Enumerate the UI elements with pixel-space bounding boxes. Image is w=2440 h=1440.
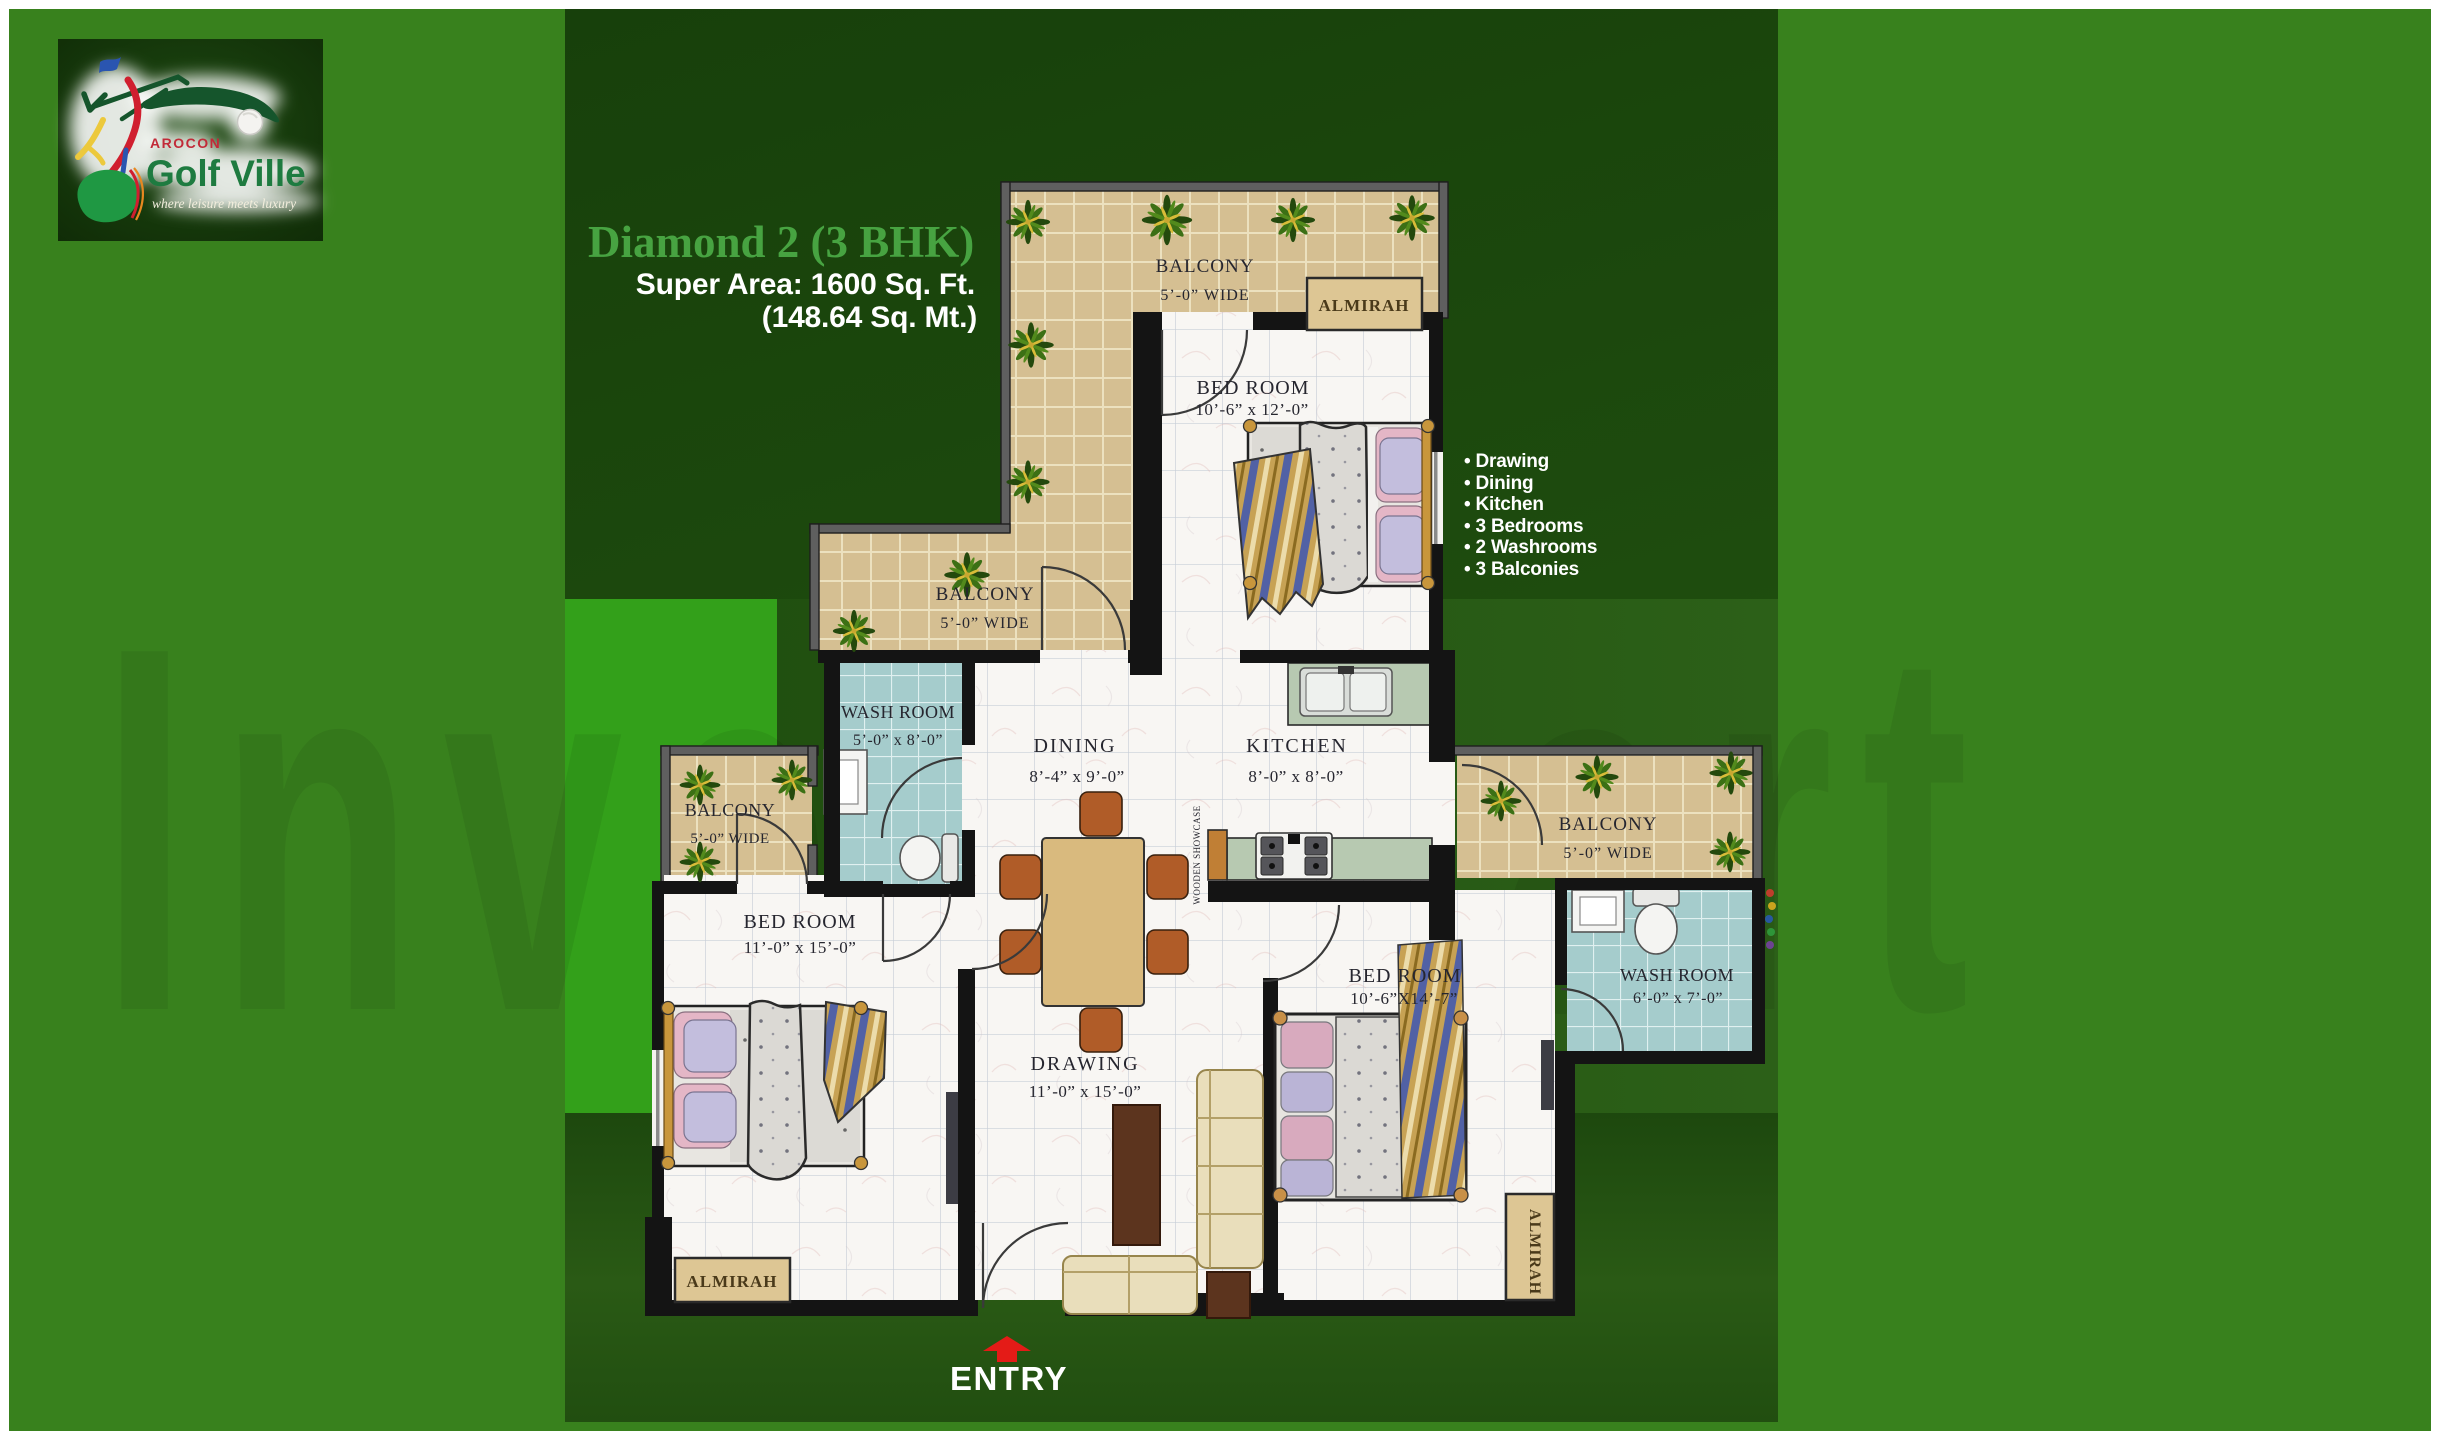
svg-text:BED ROOM: BED ROOM [1196,377,1309,399]
svg-text:AROCON: AROCON [150,135,221,151]
svg-text:5’-0” WIDE: 5’-0” WIDE [1160,287,1249,304]
svg-text:ENTRY: ENTRY [950,1360,1068,1397]
svg-text:BED ROOM: BED ROOM [743,911,856,933]
svg-text:Diamond 2 (3 BHK): Diamond 2 (3 BHK) [588,217,974,267]
svg-text:WOODEN SHOWCASE: WOODEN SHOWCASE [1192,805,1202,904]
svg-text:• Kitchen: • Kitchen [1464,494,1544,515]
svg-text:8’-0” x 8’-0”: 8’-0” x 8’-0” [1248,767,1343,786]
svg-text:• Dining: • Dining [1464,473,1533,494]
svg-text:BALCONY: BALCONY [1156,256,1255,277]
svg-text:5’-0” WIDE: 5’-0” WIDE [940,615,1029,632]
svg-text:ALMIRAH: ALMIRAH [686,1272,777,1291]
svg-text:WASH ROOM: WASH ROOM [1620,965,1734,985]
svg-text:(148.64 Sq. Mt.): (148.64 Sq. Mt.) [762,301,977,334]
svg-text:KITCHEN: KITCHEN [1246,735,1348,757]
svg-text:BED ROOM: BED ROOM [1348,965,1461,987]
svg-text:6’-0” x 7’-0”: 6’-0” x 7’-0” [1633,990,1723,1007]
svg-text:• Drawing: • Drawing [1464,451,1549,472]
svg-text:11’-0” x 15’-0”: 11’-0” x 15’-0” [1029,1082,1142,1101]
svg-text:WASH ROOM: WASH ROOM [841,702,955,722]
svg-text:ALMIRAH: ALMIRAH [1526,1209,1543,1295]
svg-text:BALCONY: BALCONY [936,584,1035,605]
svg-text:ALMIRAH: ALMIRAH [1318,296,1409,315]
svg-text:BALCONY: BALCONY [1559,814,1658,835]
svg-text:• 2 Washrooms: • 2 Washrooms [1464,537,1597,558]
svg-text:5’-0” WIDE: 5’-0” WIDE [1563,845,1652,862]
svg-text:Golf Ville: Golf Ville [146,153,306,194]
svg-text:11’-0” x 15’-0”: 11’-0” x 15’-0” [744,938,857,957]
svg-text:• 3 Bedrooms: • 3 Bedrooms [1464,516,1583,537]
svg-text:• 3 Balconies: • 3 Balconies [1464,559,1579,580]
svg-text:10’-6” x 12’-0”: 10’-6” x 12’-0” [1195,400,1308,419]
svg-text:BALCONY: BALCONY [685,800,776,820]
svg-text:5’-0” WIDE: 5’-0” WIDE [690,831,769,847]
svg-text:10’-6”X14’-7”: 10’-6”X14’-7” [1350,989,1458,1008]
svg-text:8’-4” x 9’-0”: 8’-4” x 9’-0” [1029,767,1124,786]
svg-text:Super Area: 1600 Sq. Ft.: Super Area: 1600 Sq. Ft. [636,268,975,301]
svg-text:DRAWING: DRAWING [1030,1053,1139,1075]
svg-text:5’-0” x 8’-0”: 5’-0” x 8’-0” [853,732,943,749]
svg-text:DINING: DINING [1033,735,1116,757]
svg-text:where leisure meets luxury: where leisure meets luxury [152,196,296,211]
